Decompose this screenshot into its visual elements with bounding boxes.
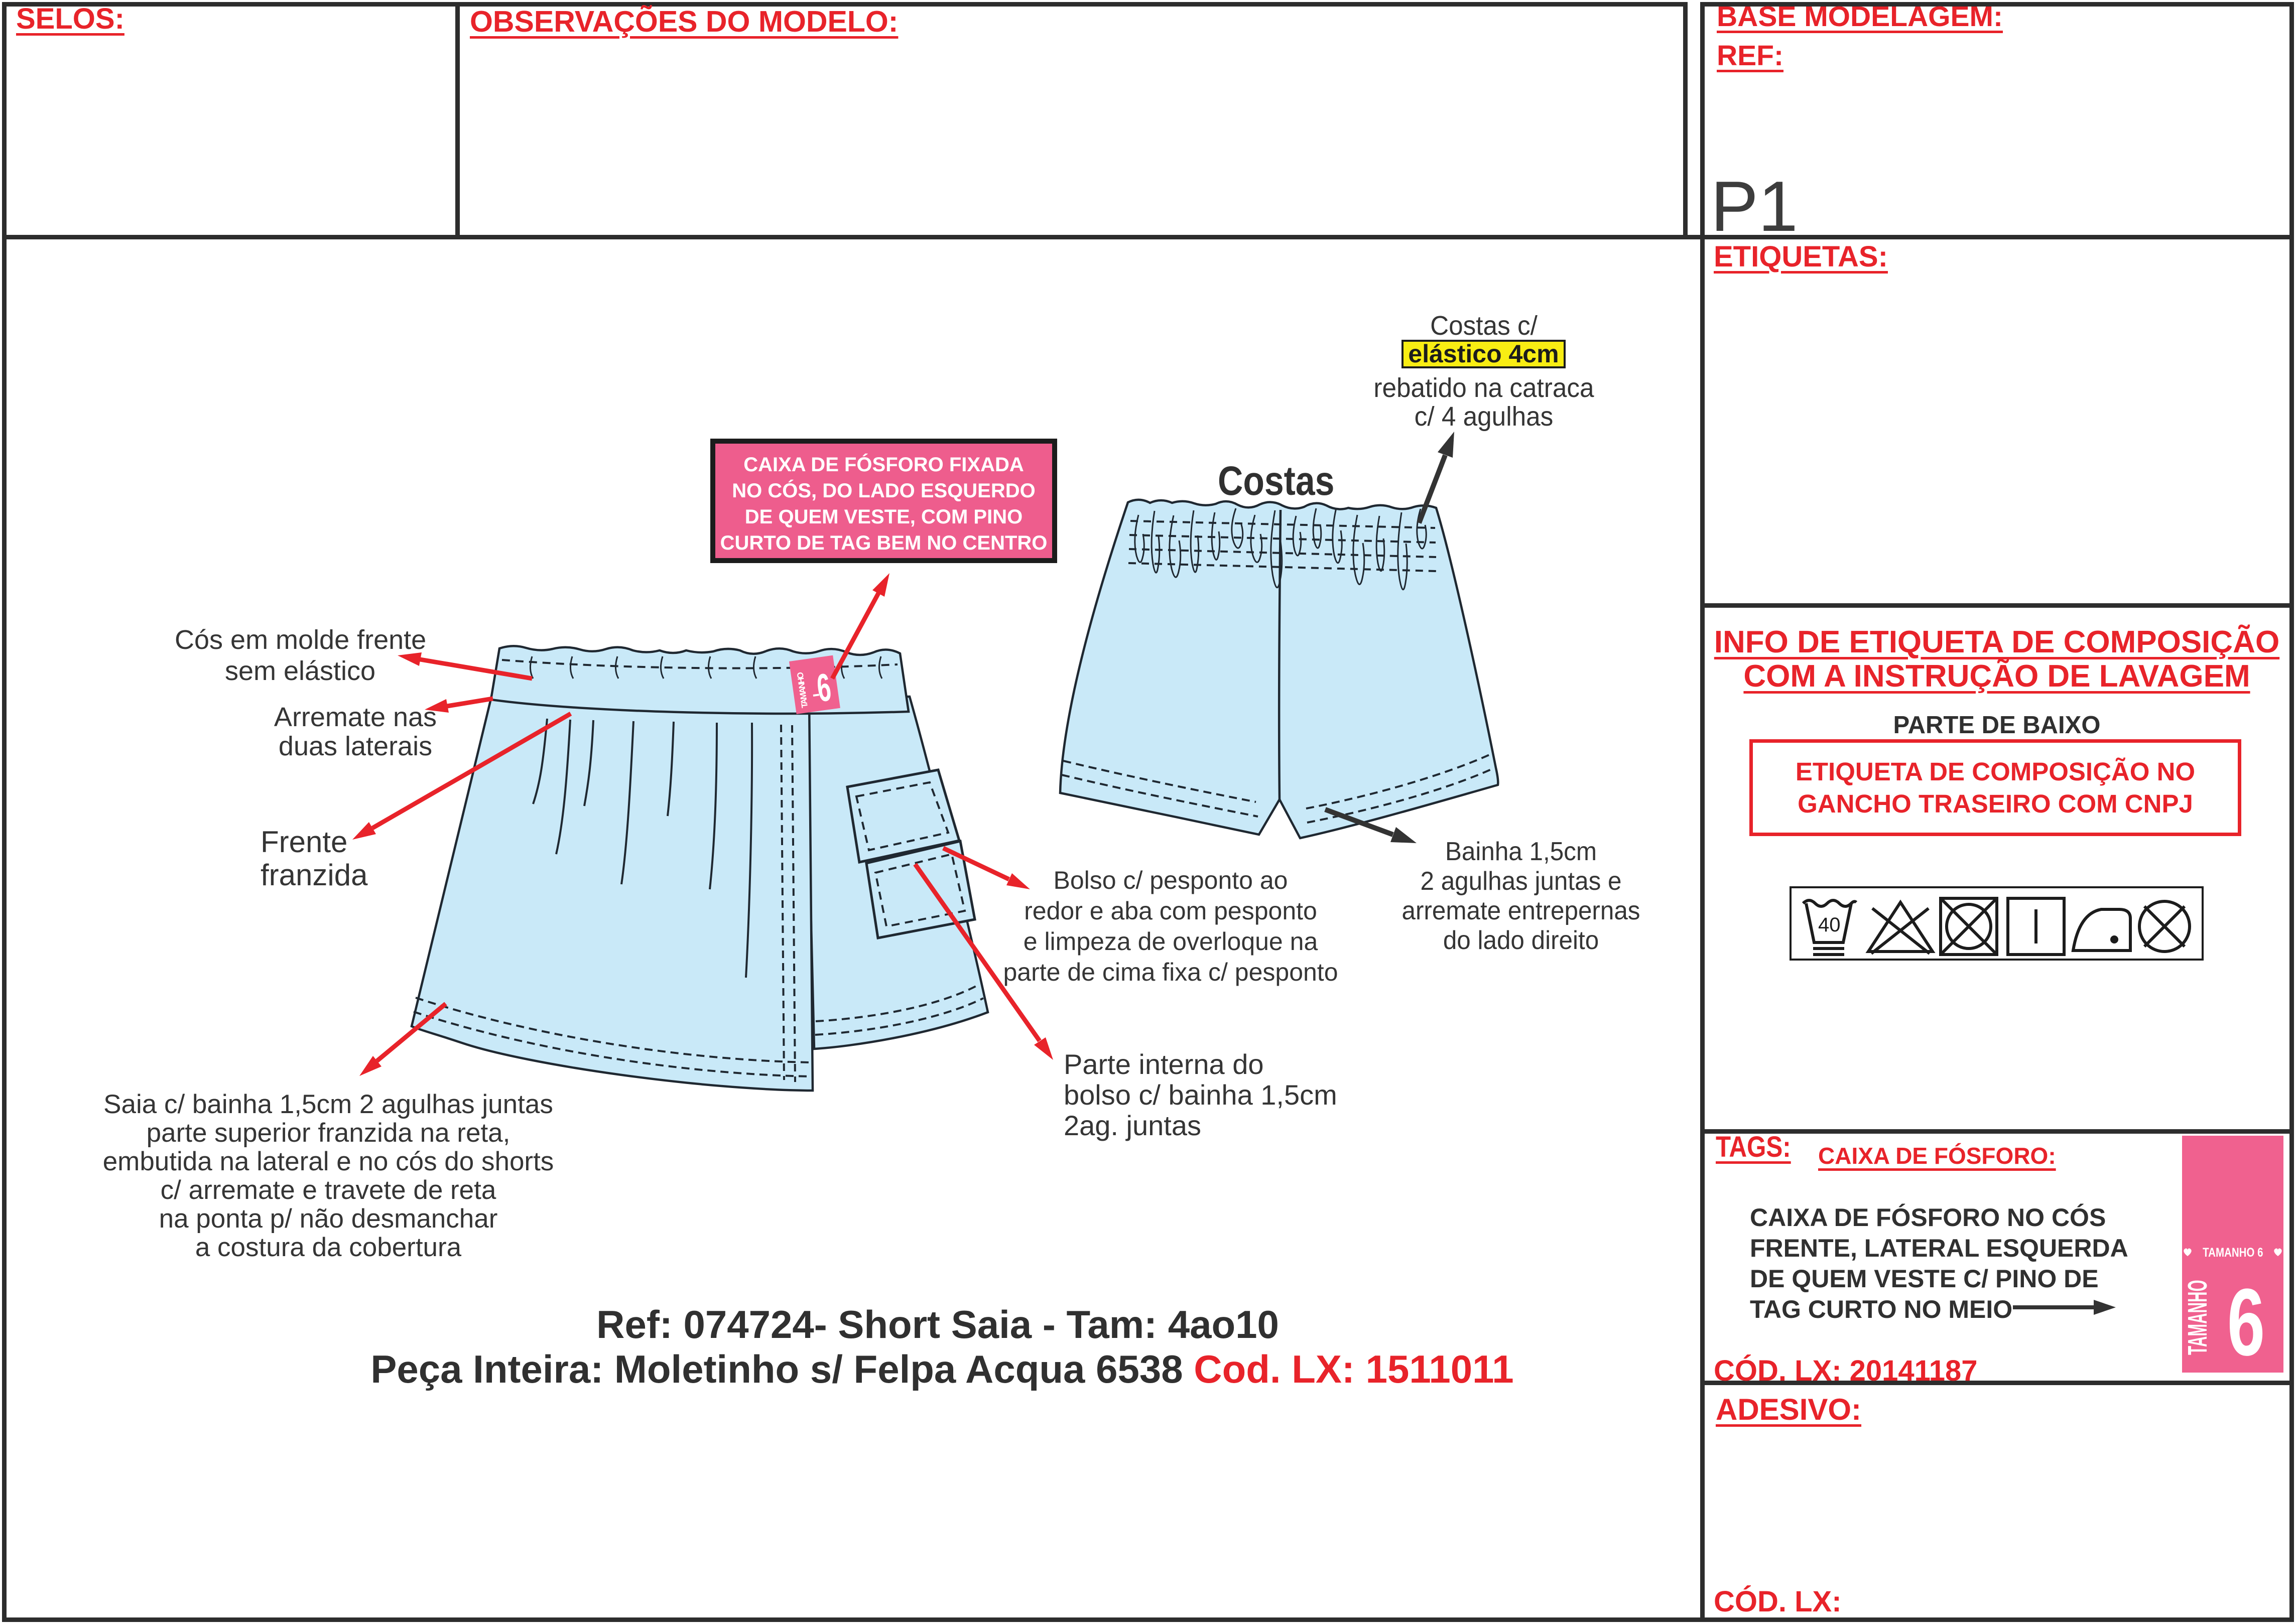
svg-text:40: 40	[1818, 914, 1841, 936]
